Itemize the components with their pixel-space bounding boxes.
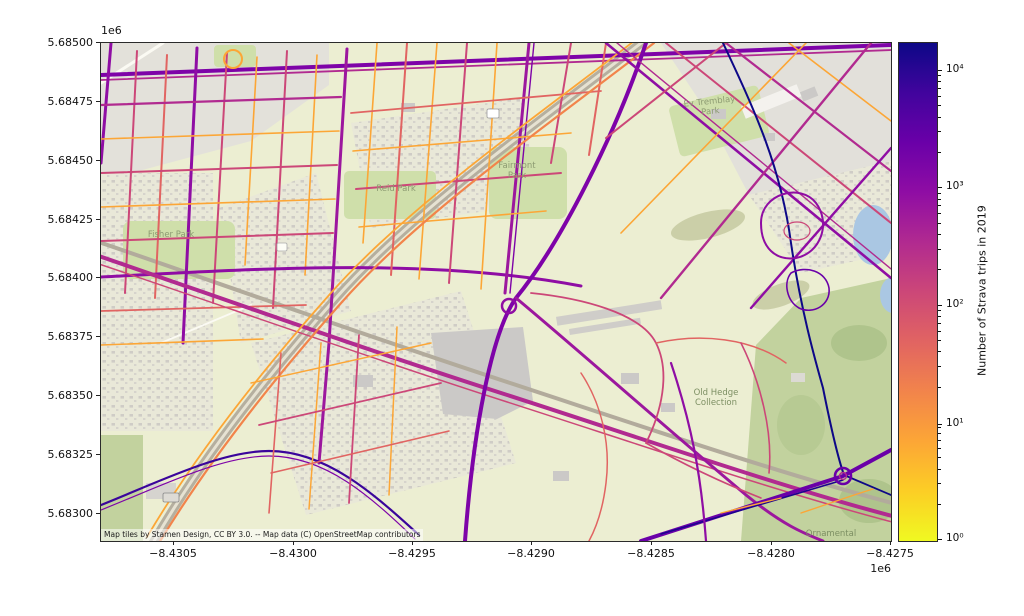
- label-fisher-park: Fisher Park: [136, 231, 206, 241]
- y-tick-label: 5.68375: [33, 330, 93, 343]
- colorbar-minor-tick: [938, 310, 941, 311]
- colorbar-minor-tick: [938, 366, 941, 367]
- colorbar-minor-tick: [938, 269, 941, 270]
- label-fairmont-park: Fairmont Park: [493, 162, 541, 181]
- map-canvas: [101, 43, 891, 541]
- map-attribution: Map tiles by Stamen Design, CC BY 3.0. -…: [101, 529, 423, 541]
- colorbar-minor-tick: [938, 448, 941, 449]
- y-tick-label: 5.68475: [33, 95, 93, 108]
- colorbar-minor-tick: [938, 249, 941, 250]
- colorbar-minor-tick: [938, 440, 941, 441]
- colorbar-minor-tick: [938, 96, 941, 97]
- y-axis-offset: 1e6: [101, 24, 122, 37]
- colorbar-minor-tick: [938, 105, 941, 106]
- colorbar-minor-tick: [938, 75, 941, 76]
- colorbar-minor-tick: [938, 331, 941, 332]
- colorbar-minor-tick: [938, 504, 941, 505]
- colorbar-minor-tick: [938, 234, 941, 235]
- label-ornamental: Ornamental: [796, 530, 866, 540]
- colorbar-minor-tick: [938, 205, 941, 206]
- x-tick-label: −8.4280: [731, 547, 811, 560]
- colorbar-minor-tick: [938, 152, 941, 153]
- x-tick-label: −8.4300: [253, 547, 333, 560]
- x-axis-offset: 1e6: [845, 562, 891, 575]
- map-plot-area: Fisher Park Reid Park Fairmont Park Ev T…: [100, 42, 892, 542]
- x-tick-label: −8.4290: [491, 547, 571, 560]
- colorbar-minor-tick: [938, 81, 941, 82]
- colorbar-minor-tick: [938, 433, 941, 434]
- colorbar: [898, 42, 938, 542]
- colorbar-minor-tick: [938, 213, 941, 214]
- y-tick-label: 5.68500: [33, 36, 93, 49]
- x-tick-label: −8.4295: [372, 547, 452, 560]
- label-reid-park: Reid Park: [361, 185, 431, 195]
- x-tick-label: −8.4275: [850, 547, 930, 560]
- colorbar-minor-tick: [938, 223, 941, 224]
- colorbar-minor-tick: [938, 457, 941, 458]
- x-tick-label: −8.4285: [611, 547, 691, 560]
- y-tick-label: 5.68325: [33, 448, 93, 461]
- colorbar-minor-tick: [938, 316, 941, 317]
- colorbar-minor-tick: [938, 427, 941, 428]
- y-tick-label: 5.68300: [33, 507, 93, 520]
- x-tick-label: −8.4305: [133, 547, 213, 560]
- y-tick-label: 5.68350: [33, 389, 93, 402]
- y-tick-label: 5.68450: [33, 154, 93, 167]
- colorbar-minor-tick: [938, 351, 941, 352]
- colorbar-minor-tick: [938, 323, 941, 324]
- colorbar-minor-tick: [938, 199, 941, 200]
- label-old-hedge-collection: Old Hedge Collection: [686, 389, 746, 408]
- colorbar-minor-tick: [938, 469, 941, 470]
- y-tick-label: 5.68400: [33, 271, 93, 284]
- colorbar-title: Number of Strava trips in 2019: [974, 42, 990, 540]
- colorbar-minor-tick: [938, 193, 941, 194]
- colorbar-minor-tick: [938, 88, 941, 89]
- colorbar-minor-tick: [938, 117, 941, 118]
- colorbar-minor-tick: [938, 340, 941, 341]
- colorbar-minor-tick: [938, 483, 941, 484]
- colorbar-minor-tick: [938, 131, 941, 132]
- colorbar-minor-tick: [938, 387, 941, 388]
- strava-map-figure: Fisher Park Reid Park Fairmont Park Ev T…: [0, 0, 1024, 616]
- y-tick-label: 5.68425: [33, 213, 93, 226]
